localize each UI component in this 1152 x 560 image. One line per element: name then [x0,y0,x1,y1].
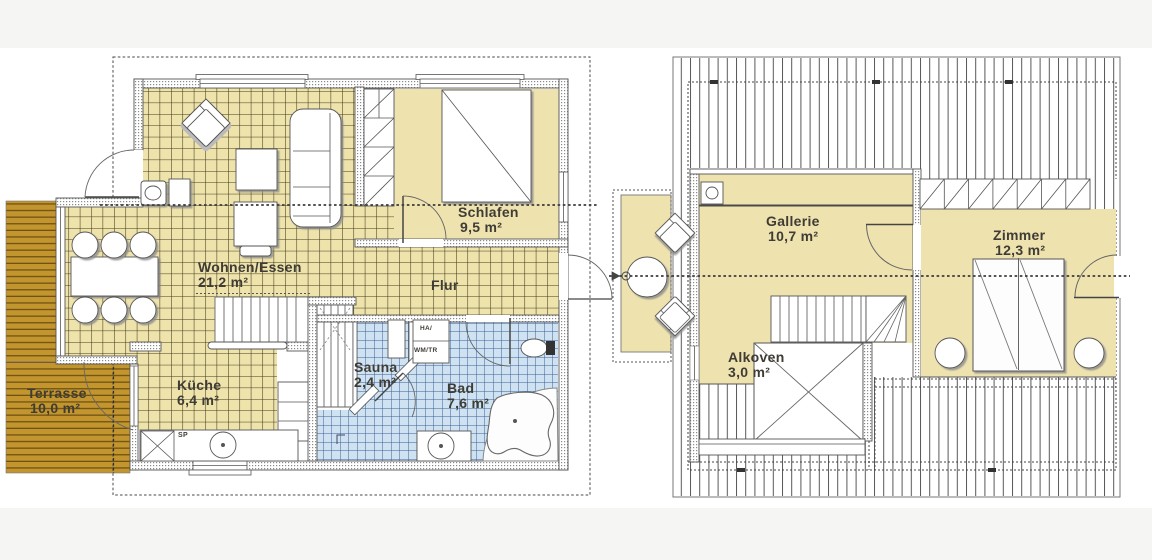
svg-text:Sauna: Sauna [354,359,398,375]
svg-text:SP: SP [178,432,188,439]
svg-text:Küche: Küche [177,377,221,393]
svg-text:Wohnen/Essen: Wohnen/Essen [198,259,302,275]
svg-text:10,7 m²: 10,7 m² [768,228,818,244]
svg-text:Schlafen: Schlafen [458,204,519,220]
svg-text:12,3 m²: 12,3 m² [995,242,1045,258]
svg-text:Flur: Flur [431,277,459,293]
svg-text:Alkoven: Alkoven [728,349,785,365]
svg-text:7,6 m²: 7,6 m² [447,395,489,411]
svg-text:21,2 m²: 21,2 m² [198,274,248,290]
svg-text:6,4 m²: 6,4 m² [177,392,219,408]
svg-text:2,4 m²: 2,4 m² [354,374,396,390]
svg-text:Zimmer: Zimmer [993,227,1046,243]
svg-text:Terrasse: Terrasse [27,385,87,401]
svg-text:WM/TR: WM/TR [414,347,438,354]
svg-text:3,0 m²: 3,0 m² [728,364,770,380]
svg-text:10,0 m²: 10,0 m² [30,400,80,416]
svg-text:Gallerie: Gallerie [766,213,820,229]
svg-text:9,5 m²: 9,5 m² [460,219,502,235]
svg-text:HA/: HA/ [420,325,432,332]
svg-text:Bad: Bad [447,380,474,396]
